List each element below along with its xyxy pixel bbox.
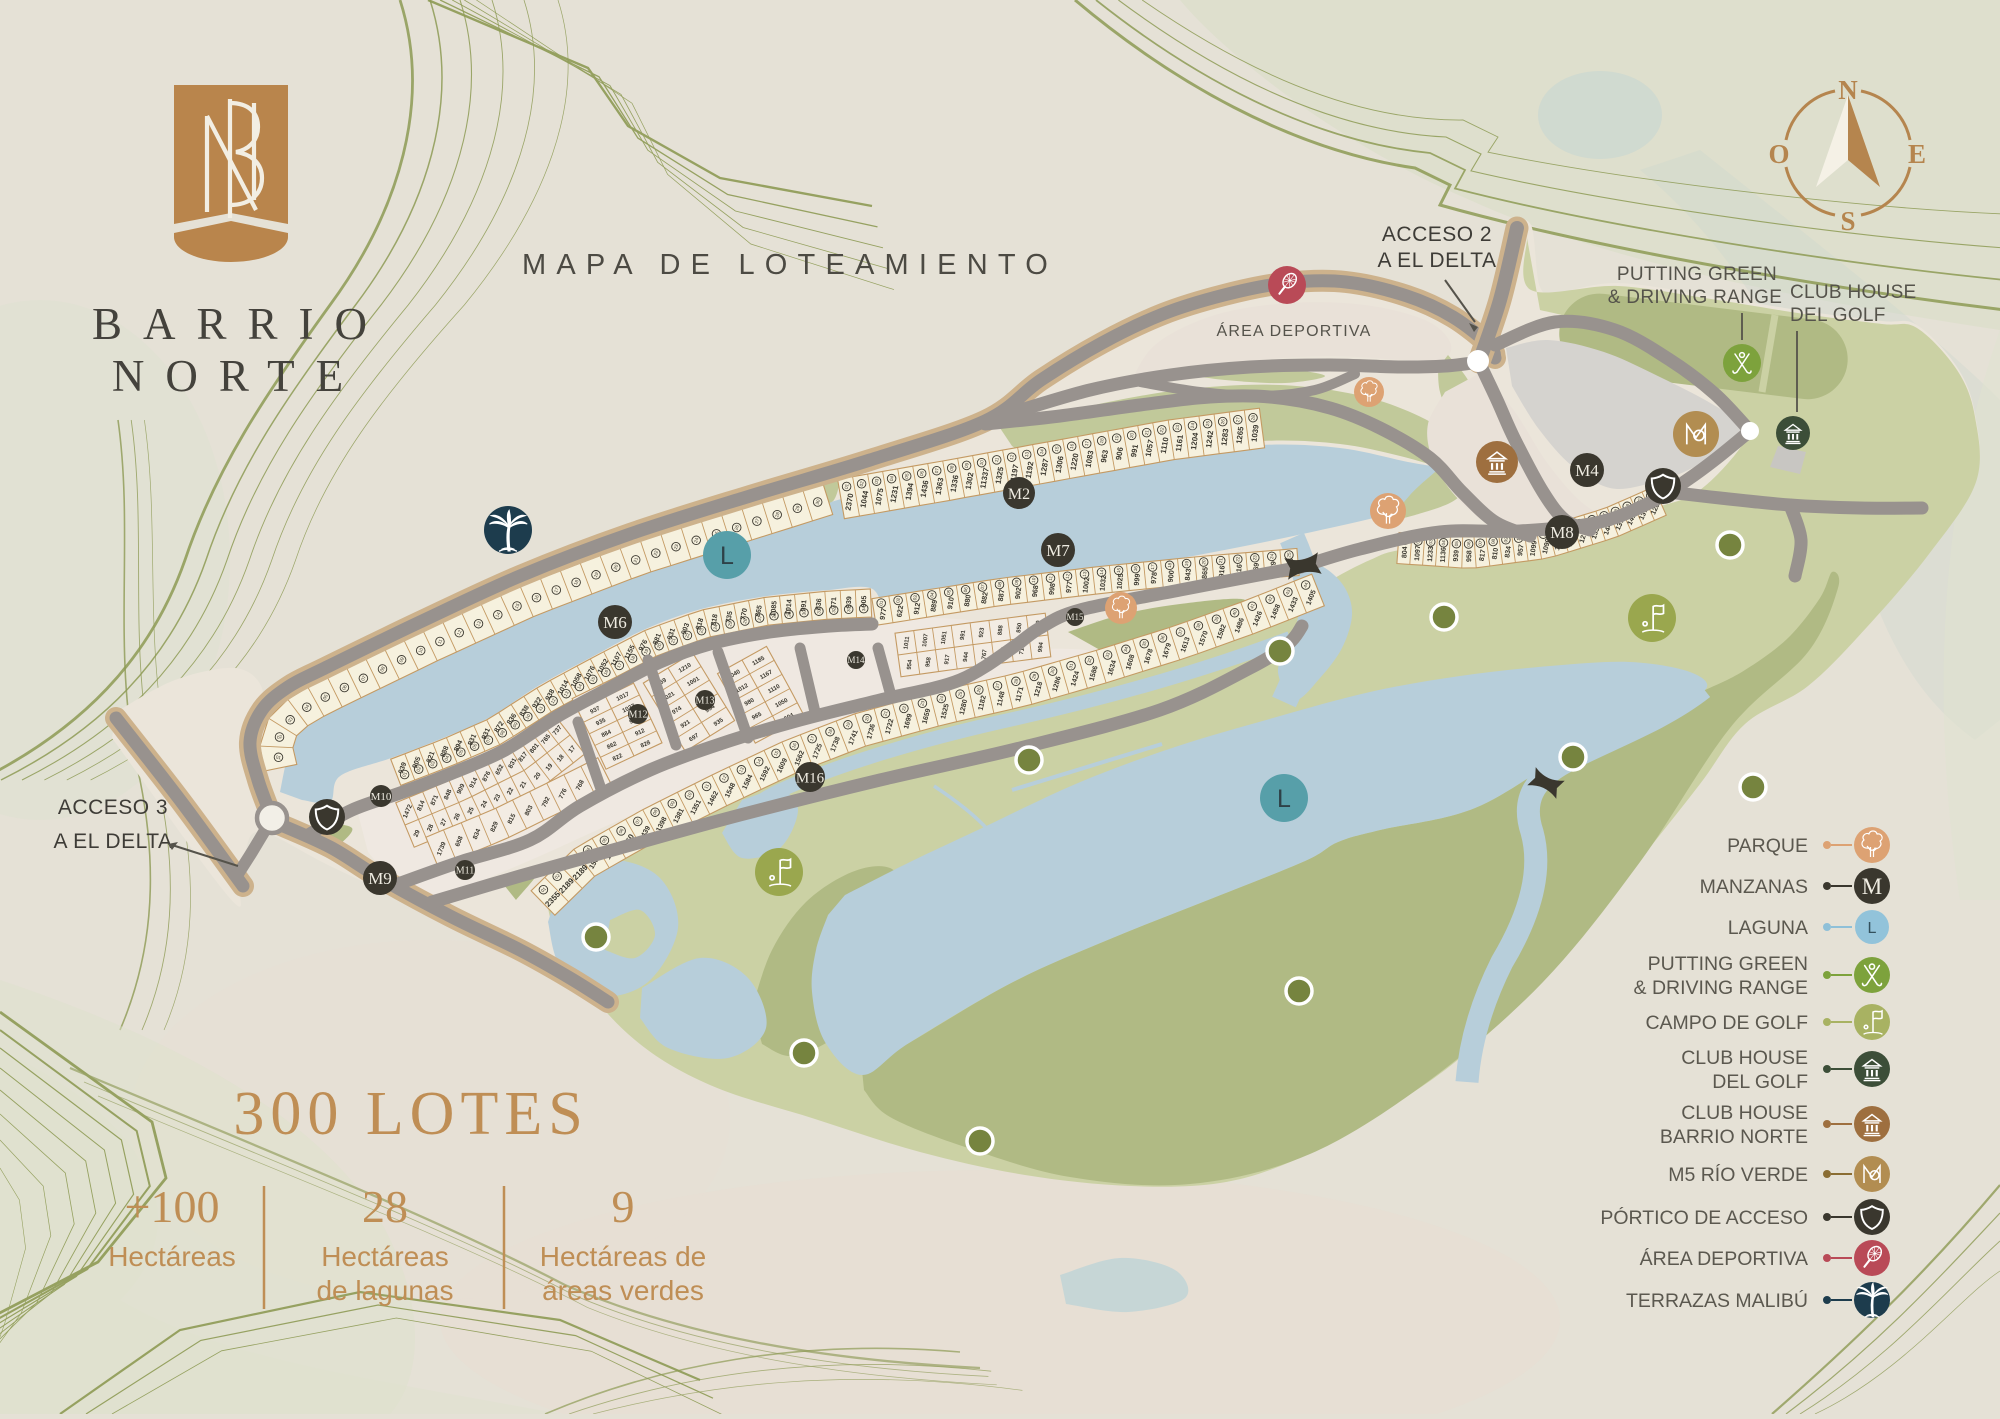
svg-text:1032: 1032 (1097, 575, 1108, 592)
svg-text:MAPA DE LOTEAMIENTO: MAPA DE LOTEAMIENTO (522, 249, 1058, 281)
svg-text:1136: 1136 (1440, 547, 1448, 563)
svg-text:E: E (1908, 139, 1926, 169)
svg-text:912: 912 (911, 602, 922, 615)
svg-text:865: 865 (1200, 567, 1210, 580)
svg-text:A EL DELTA: A EL DELTA (1378, 249, 1497, 272)
svg-text:882: 882 (979, 591, 990, 604)
svg-text:923: 923 (979, 627, 986, 638)
svg-text:M4: M4 (1575, 461, 1599, 480)
svg-text:06: 06 (1466, 541, 1471, 547)
svg-text:ÁREA DEPORTIVA: ÁREA DEPORTIVA (1640, 1247, 1808, 1270)
svg-text:LAGUNA: LAGUNA (1728, 917, 1808, 939)
svg-text:1097: 1097 (1414, 545, 1422, 561)
svg-text:O: O (1768, 139, 1789, 169)
svg-text:CLUB HOUSE: CLUB HOUSE (1681, 1047, 1808, 1069)
svg-text:771: 771 (831, 597, 839, 609)
svg-text:ACCESO 2: ACCESO 2 (1382, 223, 1492, 246)
svg-text:A EL DELTA: A EL DELTA (54, 830, 173, 853)
svg-text:622: 622 (895, 605, 906, 618)
svg-text:S: S (1840, 206, 1855, 236)
svg-text:958: 958 (1466, 550, 1473, 562)
svg-text:998: 998 (1047, 583, 1057, 596)
svg-text:15: 15 (1116, 567, 1122, 573)
svg-text:21: 21 (1218, 557, 1223, 563)
svg-text:889: 889 (928, 599, 939, 612)
svg-text:Hectáreas: Hectáreas (321, 1241, 449, 1272)
svg-text:18: 18 (1167, 562, 1173, 568)
svg-text:áreas verdes: áreas verdes (542, 1275, 704, 1306)
svg-text:804: 804 (1401, 546, 1409, 558)
svg-text:887: 887 (996, 589, 1007, 602)
svg-text:999: 999 (1132, 573, 1142, 586)
svg-text:M7: M7 (1046, 541, 1070, 560)
svg-text:L: L (1868, 920, 1877, 937)
svg-text:+100: +100 (125, 1181, 220, 1232)
svg-text:300 LOTES: 300 LOTES (233, 1080, 588, 1148)
svg-text:PUTTING GREEN: PUTTING GREEN (1617, 264, 1777, 285)
svg-text:Hectáreas: Hectáreas (108, 1241, 236, 1272)
svg-text:977: 977 (878, 607, 889, 620)
svg-text:PARQUE: PARQUE (1727, 835, 1808, 857)
svg-text:05: 05 (1454, 541, 1459, 547)
svg-text:23: 23 (1252, 555, 1257, 561)
svg-text:19: 19 (1184, 560, 1190, 566)
svg-text:M11: M11 (456, 866, 475, 877)
svg-text:977: 977 (1064, 581, 1074, 594)
svg-text:M8: M8 (1550, 523, 1574, 542)
svg-text:28: 28 (362, 1181, 408, 1232)
svg-text:939: 939 (1453, 550, 1461, 562)
svg-text:9: 9 (612, 1181, 635, 1232)
svg-text:M6: M6 (603, 613, 627, 632)
svg-text:24: 24 (1269, 553, 1274, 559)
svg-text:CLUB HOUSE: CLUB HOUSE (1790, 282, 1917, 303)
svg-text:25: 25 (1286, 552, 1291, 558)
svg-text:968: 968 (1030, 585, 1040, 598)
svg-text:978: 978 (1149, 571, 1159, 584)
svg-text:17: 17 (1150, 564, 1156, 570)
svg-text:M13: M13 (696, 696, 715, 707)
svg-text:de lagunas: de lagunas (316, 1275, 453, 1306)
svg-text:880: 880 (962, 594, 973, 607)
svg-text:Hectáreas de: Hectáreas de (540, 1241, 707, 1272)
svg-text:836: 836 (815, 598, 823, 610)
svg-text:910: 910 (945, 596, 956, 609)
svg-text:M16: M16 (796, 770, 825, 786)
svg-text:991: 991 (800, 599, 808, 611)
svg-text:NORTE: NORTE (112, 351, 364, 401)
svg-text:L: L (720, 542, 734, 570)
svg-text:M15: M15 (1066, 612, 1084, 622)
svg-text:22: 22 (1235, 556, 1240, 562)
svg-text:16: 16 (1133, 565, 1139, 571)
svg-text:1002: 1002 (1080, 577, 1091, 594)
svg-text:BARRIO NORTE: BARRIO NORTE (1660, 1126, 1808, 1148)
svg-text:ÁREA DEPORTIVA: ÁREA DEPORTIVA (1217, 321, 1372, 340)
svg-text:939: 939 (846, 596, 854, 608)
svg-text:DEL GOLF: DEL GOLF (1790, 305, 1886, 326)
svg-text:DEL GOLF: DEL GOLF (1712, 1071, 1808, 1093)
svg-text:902: 902 (1013, 587, 1023, 600)
svg-text:850: 850 (1016, 622, 1023, 633)
svg-text:14: 14 (1099, 569, 1105, 575)
svg-text:& DRIVING RANGE: & DRIVING RANGE (1608, 287, 1782, 308)
svg-text:M12: M12 (629, 710, 648, 721)
svg-text:M14: M14 (847, 655, 865, 665)
svg-text:900: 900 (1166, 570, 1176, 583)
svg-text:CAMPO DE GOLF: CAMPO DE GOLF (1645, 1012, 1808, 1034)
svg-text:M5 RÍO VERDE: M5 RÍO VERDE (1668, 1163, 1808, 1186)
svg-text:L: L (1277, 785, 1291, 813)
svg-text:20: 20 (1201, 559, 1206, 565)
svg-text:& DRIVING RANGE: & DRIVING RANGE (1634, 977, 1808, 999)
svg-text:M: M (1862, 874, 1882, 899)
svg-text:M9: M9 (368, 869, 392, 888)
svg-text:MANZANAS: MANZANAS (1700, 876, 1808, 898)
svg-text:CLUB HOUSE: CLUB HOUSE (1681, 1102, 1808, 1124)
svg-text:M10: M10 (371, 791, 392, 803)
svg-text:PUTTING GREEN: PUTTING GREEN (1648, 953, 1808, 975)
svg-text:04: 04 (1441, 540, 1446, 546)
svg-text:BARRIO: BARRIO (92, 299, 388, 349)
svg-text:1025: 1025 (1114, 573, 1125, 590)
svg-text:TERRAZAS MALIBÚ: TERRAZAS MALIBÚ (1626, 1289, 1808, 1312)
svg-text:PÓRTICO DE ACCESO: PÓRTICO DE ACCESO (1600, 1206, 1808, 1229)
svg-text:M2: M2 (1008, 486, 1030, 503)
svg-text:1233: 1233 (1427, 546, 1435, 562)
svg-text:905: 905 (861, 595, 869, 607)
svg-text:843: 843 (1183, 568, 1193, 581)
svg-text:ACCESO 3: ACCESO 3 (58, 796, 168, 819)
